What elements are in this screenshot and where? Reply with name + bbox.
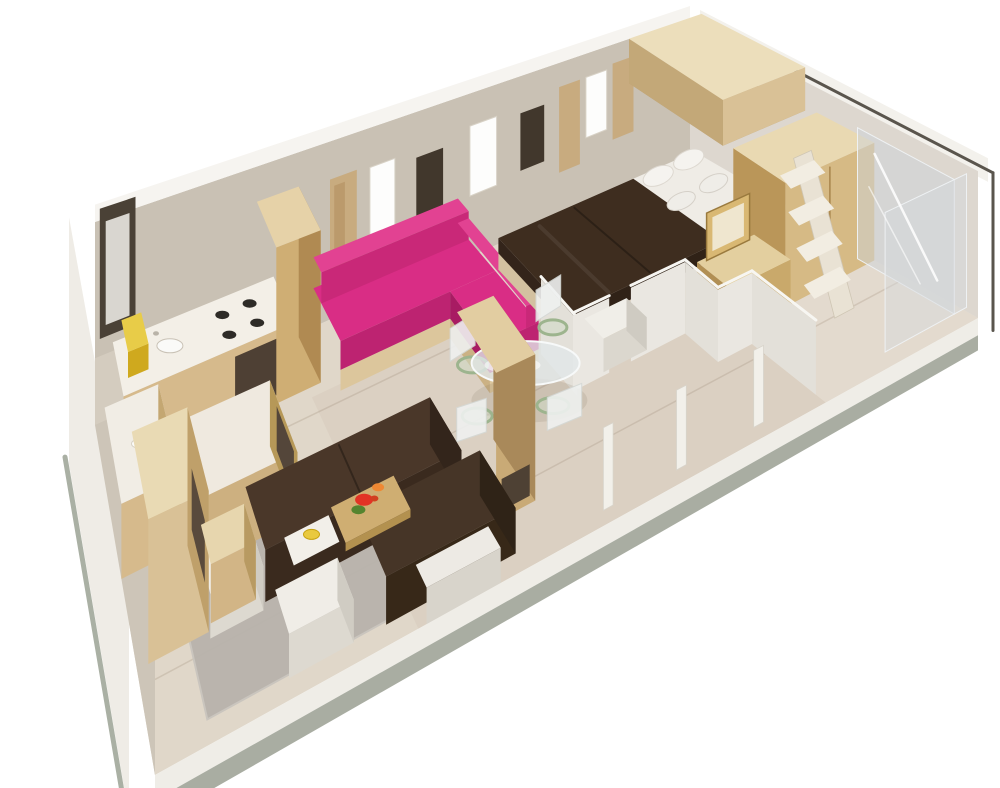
- fruit-bowl: [304, 529, 320, 539]
- door-post-1: [603, 423, 613, 511]
- window-2: [470, 116, 497, 196]
- floorplan-image: [0, 0, 1000, 788]
- floorplan-3d-scene: [0, 0, 1000, 788]
- kitchen-sink: [157, 339, 183, 353]
- window-3: [586, 70, 607, 138]
- stove-burner-4: [250, 319, 264, 327]
- picture-frame-2: [520, 105, 544, 171]
- door-post-2: [677, 385, 687, 470]
- door-post-3: [754, 345, 764, 427]
- stove-burner-2: [243, 299, 257, 307]
- kitchen-faucet: [153, 331, 159, 335]
- flowers-red-small: [370, 496, 378, 502]
- left-window-pane: [106, 213, 130, 325]
- flowers-green: [351, 505, 365, 514]
- stove-burner-3: [222, 331, 236, 339]
- dining-chair-2-seat: [539, 320, 567, 335]
- flowers-orange: [372, 483, 384, 491]
- flowers-red: [355, 494, 373, 506]
- curtain-2: [559, 80, 580, 173]
- stove-burner-1: [215, 311, 229, 319]
